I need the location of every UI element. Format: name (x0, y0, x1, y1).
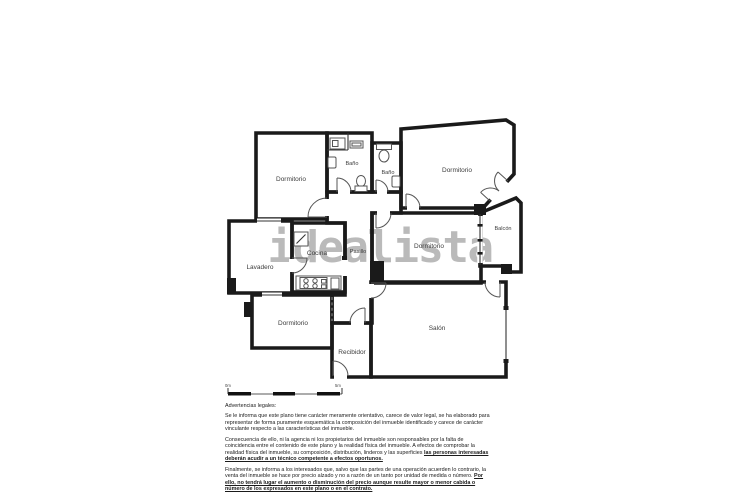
label-bano-2: Baño (381, 170, 394, 176)
washbasin-icon (392, 176, 400, 187)
kitchen-sink-icon (331, 278, 339, 289)
toilet-icon (357, 176, 366, 187)
legal-paragraph-3: Finalmente, se informa a los interesados… (225, 467, 493, 493)
label-lavadero: Lavadero (246, 264, 273, 271)
legal-notes: Advertencias legales: Se le informa que … (225, 403, 493, 497)
toilet-icon (379, 150, 389, 162)
label-recibidor: Recibidor (338, 349, 366, 356)
label-balcon: Balcón (494, 226, 511, 232)
floorplan-page: idealista (0, 0, 750, 500)
label-salon: Salón (429, 325, 446, 332)
label-bano-1: Baño (345, 161, 358, 167)
label-pasillo: Pasillo (350, 249, 366, 255)
legal-paragraph-1: Se le informa que este plano tiene carác… (225, 413, 493, 432)
scale-end-label: 5m (335, 383, 341, 388)
label-dormitorio-tl: Dormitorio (276, 176, 306, 183)
toilet-tank-icon (377, 144, 392, 150)
label-dormitorio-mid: Dormitorio (414, 243, 444, 250)
washbasin-icon (328, 157, 336, 168)
legal-paragraph-3-text: Finalmente, se informa a los interesados… (225, 467, 486, 479)
label-cocina: Cocina (307, 250, 328, 257)
label-dormitorio-bl: Dormitorio (278, 320, 308, 327)
scale-start-label: 0m (225, 383, 231, 388)
scale-bar: 0m 5m (225, 383, 342, 396)
label-dormitorio-tr: Dormitorio (442, 167, 472, 174)
legal-paragraph-2: Consecuencia de ello, ni la agencia ni l… (225, 437, 493, 463)
legal-title: Advertencias legales: (225, 403, 493, 409)
